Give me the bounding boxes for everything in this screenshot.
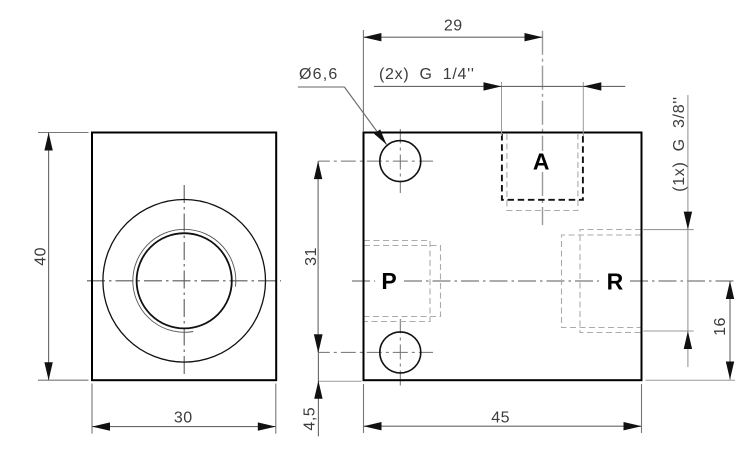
svg-text:29: 29 (444, 18, 463, 35)
svg-text:P: P (381, 268, 396, 294)
svg-text:30: 30 (174, 410, 193, 427)
svg-text:R: R (607, 269, 624, 295)
svg-text:(2x) G 1/4'': (2x) G 1/4'' (379, 66, 475, 83)
svg-text:45: 45 (491, 410, 510, 427)
svg-text:4,5: 4,5 (302, 407, 319, 431)
svg-text:A: A (533, 149, 550, 175)
svg-text:40: 40 (33, 247, 50, 266)
svg-text:16: 16 (712, 317, 729, 336)
svg-text:(1x) G 3/8'': (1x) G 3/8'' (671, 96, 688, 192)
svg-text:Ø6,6: Ø6,6 (299, 66, 339, 83)
svg-text:31: 31 (303, 247, 320, 266)
